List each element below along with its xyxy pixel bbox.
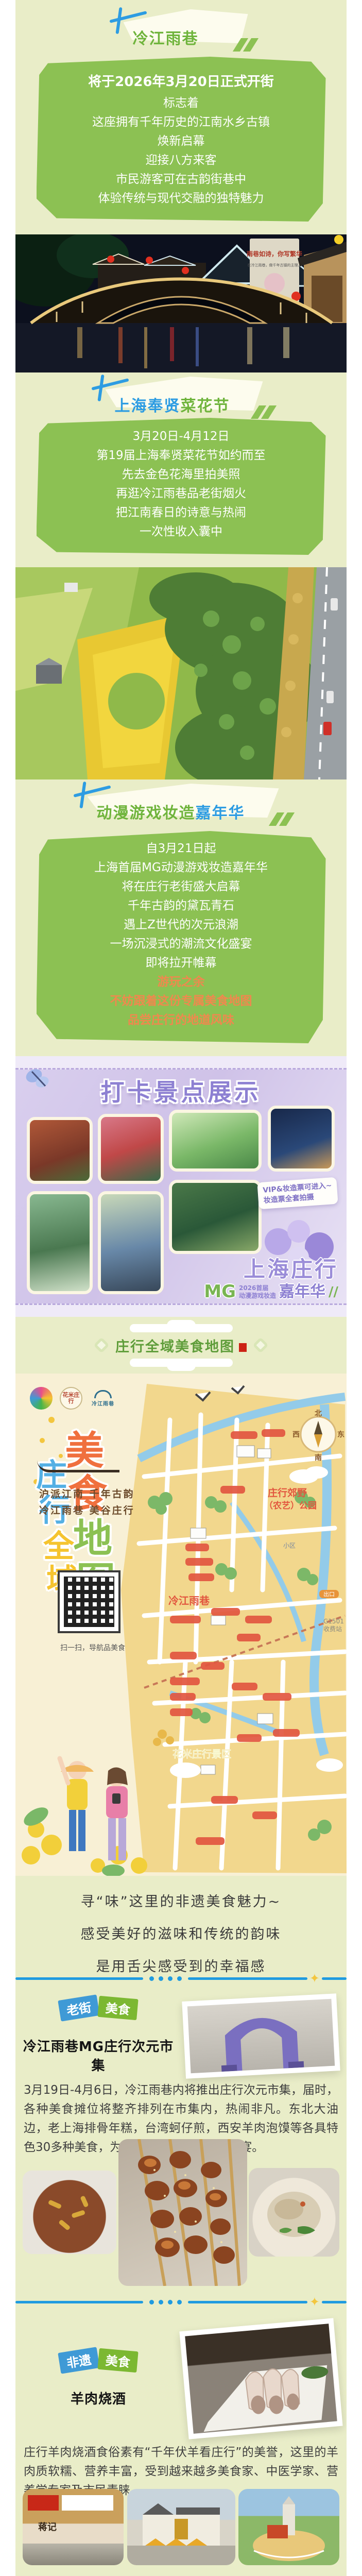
map-slogan: 沪派江南 千年古韵 冷江雨巷 美谷庄行 [39, 1486, 135, 1519]
photo-cosplay-bamboo-forest [169, 1180, 262, 1254]
bubble-line: 即将拉开帷幕 [41, 954, 322, 973]
section-divider: ✦ [15, 2569, 347, 2576]
intro-bubble-lengjiang: 将于2026年3月20日正式开街 标志着 这座拥有千年历史的江南水乡古镇 焕新启… [37, 57, 326, 222]
photo-cosplay-bamboo [169, 1110, 262, 1172]
bridge-arc-icon [94, 1390, 112, 1398]
section-title: 冷江雨巷 [133, 26, 199, 48]
food-map-illustration[interactable]: 北 东 南 西 庄行郊野 （农艺）公园 冷江雨巷 花米庄行景区 G1501 收费… [15, 1374, 347, 1876]
bubble-line-orange: 品尝庄行的地道风味 [41, 1011, 322, 1030]
handwritten-intro: 寻“味”这里的非遗美食魅力~ 感受美好的滋味和传统的韵味 是用舌尖感受到的幸福感 [15, 1876, 347, 1966]
food-gallery [15, 2135, 347, 2290]
badge-laojie: 老街 [58, 1994, 99, 2021]
bubble-line: 先去金色花海里拍美照 [41, 465, 322, 484]
storefront-sign-text: 蒋记 [38, 2520, 57, 2533]
photo-aerial-tower[interactable] [238, 2489, 339, 2565]
divider-line [188, 2301, 307, 2303]
photo-cosplay-gate [98, 1191, 164, 1294]
photo-sheep-restaurant-building[interactable] [127, 2489, 235, 2565]
butterfly-icon [23, 1065, 54, 1091]
hand-line: 寻“味”这里的非遗美食魅力~ [15, 1890, 347, 1910]
svg-text:G1501: G1501 [323, 1618, 344, 1625]
title-part-green: 动漫游戏妆造 [97, 804, 196, 822]
divider-dots [149, 1976, 182, 1981]
bubble-line: 把江南春日的诗意与热闹 [41, 503, 322, 522]
sparkle-icon: ✦ [309, 1972, 320, 1985]
section-mutton-header: 非遗 美食 羊肉烧酒 [15, 2314, 347, 2443]
map-title-char: 全 [43, 1531, 74, 1562]
section-badges: 非遗 美食 [19, 2350, 178, 2371]
svg-text:冷江雨巷: 冷江雨巷 [168, 1595, 210, 1607]
bubble-line: 千年古韵的黛瓦青石 [41, 896, 322, 916]
section-paragraph: 3月19日-4月6日，冷江雨巷内将推出庄行次元市集，届时，各种美食摊位将整齐排列… [15, 2081, 347, 2135]
photo-braised-mutton[interactable] [23, 2171, 116, 2254]
section-divider: ✦ [15, 2290, 347, 2314]
red-seal-icon [239, 1343, 247, 1352]
map-title-text: 庄行全域美食地图 [115, 1335, 247, 1355]
bubble-line: 一场沉浸式的潮流文化盛宴 [41, 935, 322, 954]
badge-feiyi: 非遗 [58, 2347, 99, 2374]
intro-bubble-carnival: 自3月21日起 上海首届MG动漫游戏妆造嘉年华 将在庄行老街盛大启幕 千年古韵的… [37, 831, 326, 1043]
divider-line [188, 1977, 307, 1980]
bubble-line: 再逛冷江雨巷品老街烟火 [41, 484, 322, 503]
svg-text:收费站: 收费站 [323, 1625, 342, 1633]
bridge-night-illustration: 雨巷如诗，你写繁华 在冷江雨巷，做千年古镇的主理人 [15, 234, 347, 372]
title-part-blue: 嘉年华 [196, 804, 245, 822]
section-header-lengjiangyuxiang: 冷江雨巷 [15, 5, 347, 57]
bubble-line: 焕新启幕 [41, 132, 322, 151]
photo-cosplay-bridge [27, 1117, 93, 1184]
photo-bridge-night[interactable]: 雨巷如诗，你写繁华 在冷江雨巷，做千年古镇的主理人 [15, 234, 347, 372]
svg-text:花米庄行景区: 花米庄行景区 [173, 1748, 231, 1760]
bubble-line: 这座拥有千年历史的江南水乡古镇 [41, 113, 322, 132]
section-paragraph: 庄行羊肉烧酒食俗素有“千年伏羊看庄行”的美誉，这里的羊肉质软糯、营养丰富，受到越… [15, 2443, 347, 2484]
green-slash-icon: // [329, 1285, 338, 1299]
section-header-carnival: 动漫游戏妆造嘉年华 [15, 779, 347, 831]
svg-text:北: 北 [315, 1410, 322, 1418]
badge-meishi: 美食 [97, 1996, 138, 2020]
bubble-line: 第19届上海奉贤菜花节如约而至 [41, 446, 322, 465]
divider-dots [149, 2300, 182, 2304]
svg-text:东: 东 [337, 1430, 344, 1439]
bubble-line: 遇上Z世代的次元浪潮 [41, 916, 322, 935]
logo-tail-text: 嘉年华 [279, 1284, 325, 1300]
collage-title: 打卡景点展示 [15, 1074, 347, 1108]
photo-cosplay-garden [27, 1191, 93, 1294]
map-title-char: 地 [73, 1519, 112, 1558]
photo-steamed-dish[interactable] [249, 2168, 339, 2257]
map-logos: 花米庄行 冷江雨巷 [30, 1387, 116, 1410]
roof-ornament-icon [37, 1460, 119, 1472]
svg-text:南: 南 [315, 1453, 322, 1462]
photo-cosplay-blue-umbrella [268, 1106, 335, 1172]
bubble-line: 自3月21日起 [41, 839, 322, 858]
divider-line [322, 1977, 347, 1980]
logo-year-sub: 2026首届动漫游戏妆造 [239, 1284, 276, 1300]
torn-paper-strip [15, 1056, 347, 1070]
logo-mg-text: MG [204, 1283, 236, 1301]
bubble-line-orange: 游玩之余 [41, 973, 322, 992]
poster-title: 雨巷如诗，你写繁华 [247, 250, 302, 258]
ornament-bracket [252, 1337, 268, 1353]
ornament-bracket [93, 1337, 109, 1353]
poster-subtitle: 在冷江雨巷，做千年古镇的主理人 [248, 263, 302, 267]
photo-meat-skewers[interactable] [118, 2139, 247, 2286]
svg-text:（农艺）公园: （农艺）公园 [264, 1500, 317, 1511]
photo-boiled-mutton[interactable] [179, 2318, 342, 2439]
divider-line [15, 2301, 143, 2303]
svg-text:西: 西 [292, 1431, 300, 1439]
svg-text:庄行郊野: 庄行郊野 [268, 1487, 307, 1499]
svg-text:小区: 小区 [283, 1542, 296, 1549]
map-qr-code [58, 1570, 120, 1633]
bubble-line: 市民游客可在古韵街巷中 [41, 170, 322, 189]
logo-main-text: 上海庄行 [204, 1258, 338, 1281]
hand-line: 感受美好的滋味和传统的韵味 [15, 1923, 347, 1943]
ornament-cloud [130, 1359, 233, 1367]
section-header-caihuajie: 上海奉贤菜花节 [15, 372, 347, 418]
intro-bubble-caihuajie: 3月20日-4月12日 第19届上海奉贤菜花节如约而至 先去金色花海里拍美照 再… [37, 418, 326, 555]
qr-caption: 扫一扫，导航品美食 [51, 1642, 134, 1653]
bubble-line-orange: 不妨跟着这份专属美食地图 [41, 992, 322, 1011]
divider-line [15, 1977, 143, 1980]
title-part-green: 菜花节 [181, 397, 230, 415]
torn-paper-strip [15, 1303, 347, 1317]
section-title: 上海奉贤菜花节 [115, 393, 230, 416]
section-badges: 老街 美食 [19, 1997, 178, 2019]
bubble-line: 上海首届MG动漫游戏妆造嘉年华 [41, 858, 322, 877]
tourist-girls-illustration [15, 1701, 170, 1876]
badge-meishi: 美食 [97, 2348, 138, 2372]
photo-jiangji-restaurant[interactable]: 蒋记 [23, 2489, 124, 2565]
divider-line [322, 2301, 347, 2303]
article-page: 冷江雨巷 将于2026年3月20日正式开街 标志着 这座拥有千年历史的江南水乡古… [15, 0, 347, 2576]
carnival-logo: 上海庄行 MG 2026首届动漫游戏妆造 嘉年华 // [204, 1258, 338, 1301]
photo-cosplay-flower-boat [98, 1114, 164, 1184]
title-part-blue: 上海奉贤 [115, 397, 181, 415]
bubble-line: 3月20日-4月12日 [41, 427, 322, 446]
lengjiang-lane-logo: 冷江雨巷 [90, 1387, 116, 1410]
section-title: 冷江雨巷MG庄行次元市集 [19, 2036, 178, 2074]
fields-illustration [15, 567, 347, 779]
huami-zhuangxing-seal: 花米庄行 [60, 1387, 82, 1410]
bubble-line: 将在庄行老街盛大启幕 [41, 877, 322, 896]
bubble-line: 将于2026年3月20日正式开街 [41, 70, 322, 94]
photo-collage-checkin-spots[interactable]: 打卡景点展示 VIP&妆造票可进入~ 妆造票全套拍摄 上海庄行 MG 2026首… [15, 1056, 347, 1317]
bubble-line: 标志着 [41, 94, 322, 113]
section-title: 羊肉烧酒 [19, 2388, 178, 2408]
vip-note-badge: VIP&妆造票可进入~ 妆造票全套拍摄 [257, 1177, 338, 1210]
sparkle-icon: ✦ [309, 2296, 320, 2308]
photo-market-arch-gate[interactable] [182, 1993, 340, 2078]
bubble-line: 一次性收入囊中 [41, 522, 322, 541]
section-title: 动漫游戏妆造嘉年华 [97, 800, 245, 823]
svg-text:出口: 出口 [323, 1590, 335, 1598]
map-frame-title: 庄行全域美食地图 [15, 1317, 347, 1374]
section-market-header: 老街 美食 冷江雨巷MG庄行次元市集 [15, 1991, 347, 2081]
food-gallery: 蒋记 [15, 2484, 347, 2569]
bubble-line: 迎接八方来客 [41, 151, 322, 170]
festival-logo-icon [30, 1387, 53, 1410]
bubble-line: 体验传统与现代交融的独特魅力 [41, 189, 322, 208]
ornament-cloud [130, 1324, 233, 1332]
photo-rapeseed-fields-aerial[interactable] [15, 567, 347, 779]
